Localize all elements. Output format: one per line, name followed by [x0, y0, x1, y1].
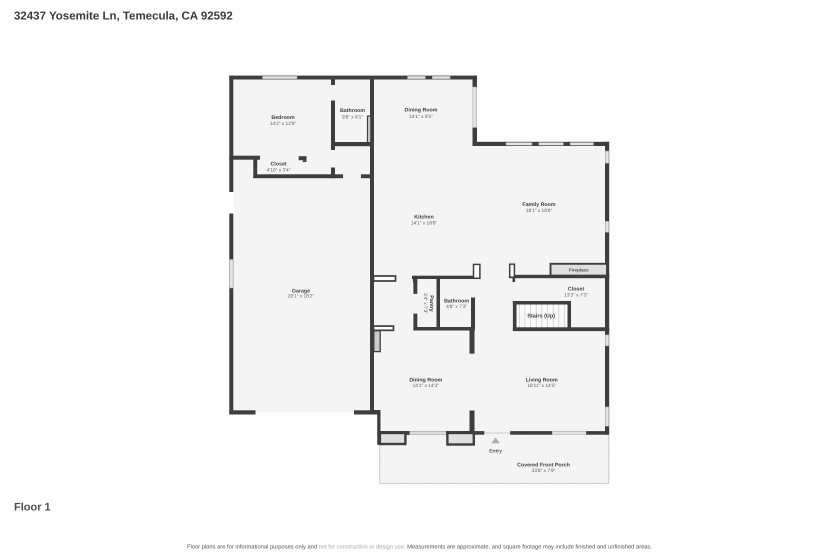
svg-text:Entry: Entry: [489, 448, 502, 454]
svg-text:Pantry: Pantry: [428, 295, 434, 312]
svg-text:14'1" x 18'8": 14'1" x 18'8": [411, 220, 438, 226]
svg-text:18'11" x 14'5": 18'11" x 14'5": [527, 383, 556, 389]
svg-text:Stairs (Up): Stairs (Up): [527, 314, 555, 320]
svg-text:4'9" x 7'3": 4'9" x 7'3": [446, 304, 467, 310]
svg-text:9'8" x 9'1": 9'8" x 9'1": [342, 114, 363, 120]
svg-text:33'8" x 7'9": 33'8" x 7'9": [532, 468, 556, 474]
svg-text:Family Room: Family Room: [522, 202, 556, 208]
svg-text:14'2" x 13'9": 14'2" x 13'9": [270, 121, 297, 127]
svg-text:3'4" x 7'3": 3'4" x 7'3": [422, 293, 428, 314]
svg-text:Dining Room: Dining Room: [405, 107, 438, 113]
svg-text:4'10" x 3'4": 4'10" x 3'4": [267, 167, 291, 173]
svg-text:20'1" x 18'2": 20'1" x 18'2": [288, 293, 315, 299]
svg-text:Floor 1: Floor 1: [14, 502, 51, 514]
svg-text:Bathroom: Bathroom: [340, 108, 365, 114]
svg-text:18'1" x 18'8": 18'1" x 18'8": [526, 208, 553, 214]
svg-text:Dining Room: Dining Room: [409, 377, 442, 383]
svg-text:Closet: Closet: [270, 162, 286, 168]
svg-text:13'3" x 7'3": 13'3" x 7'3": [564, 292, 588, 298]
svg-text:Bathroom: Bathroom: [444, 299, 469, 305]
svg-text:Living Room: Living Room: [526, 377, 558, 383]
svg-text:Closet: Closet: [568, 287, 584, 293]
svg-text:Fireplace: Fireplace: [569, 268, 589, 273]
svg-text:Covered Front Porch: Covered Front Porch: [517, 462, 570, 468]
svg-text:14'1" x 9'5": 14'1" x 9'5": [409, 114, 433, 120]
svg-text:14'1" x 14'3": 14'1" x 14'3": [413, 383, 440, 389]
svg-text:Kitchen: Kitchen: [414, 215, 433, 221]
svg-text:Floor plans are for informatio: Floor plans are for informational purpos…: [187, 544, 652, 551]
svg-text:32437 Yosemite Ln, Temecula, C: 32437 Yosemite Ln, Temecula, CA 92592: [14, 11, 233, 23]
svg-text:Bedroom: Bedroom: [271, 115, 295, 121]
